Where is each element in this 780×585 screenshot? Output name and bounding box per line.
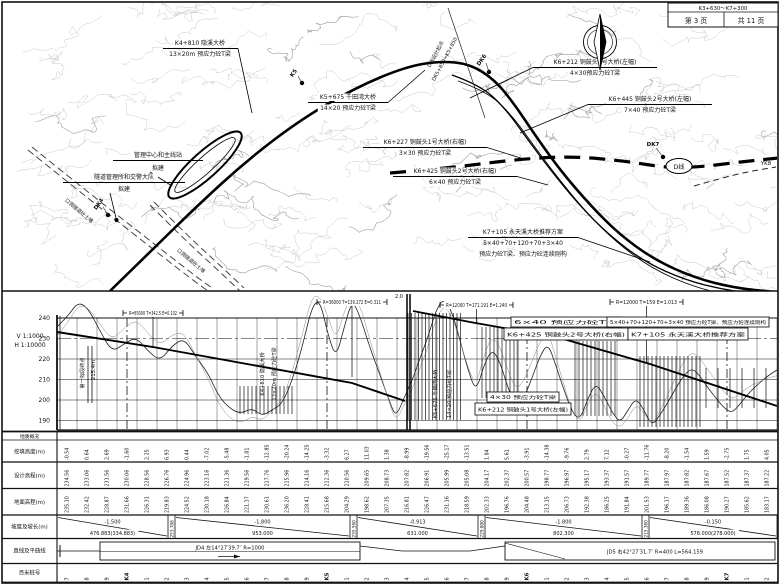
profile-data-table: 地质概况挖填高度(m)设计高程(m)地面高程(m)坡度及坡长(m)直线及平曲线百… — [2, 432, 778, 583]
cut-fill-value: 2.25 — [145, 449, 151, 460]
cut-fill-value: -5.48 — [225, 448, 231, 460]
design-elevation-value: 228.56 — [145, 470, 151, 487]
cut-fill-value: 1.75 — [745, 449, 751, 460]
ground-elevation-value: 206.73 — [565, 496, 571, 513]
design-elevation-value: 209.65 — [365, 470, 371, 487]
ground-elevation-value: 228.41 — [305, 496, 311, 513]
design-elevation-value: 187.67 — [705, 470, 711, 487]
map-callout: K5+675 千田湾大桥14×20 预应力砼T梁 — [308, 70, 425, 112]
grade-percent: -1.500 — [104, 520, 120, 526]
station-stake-label: 7 — [465, 577, 471, 580]
cut-fill-value: 2.79 — [585, 449, 591, 460]
station-stake-label: 2 — [365, 577, 371, 580]
ground-elevation-value: 235.10 — [65, 496, 71, 513]
profile-view: 240230220210200190R=85000 T=342.5 E=0.10… — [39, 294, 777, 430]
sheet-chainage-range: K3+630～K7+300 — [699, 6, 749, 12]
design-elevation-value: 226.76 — [165, 470, 171, 487]
table-row-header: 挖填高度(m) — [14, 448, 45, 456]
bridge-name-text: K6+212 铜鼓头1号大桥(左幅) — [478, 406, 568, 414]
station-stake-label: 4 — [605, 577, 611, 580]
callout-text: 拟建 — [118, 185, 130, 193]
bridge-name-text: K6+425 铜鼓头2号大桥(右幅) — [507, 331, 625, 339]
cut-fill-value: -12.85 — [265, 445, 271, 460]
contour-line — [233, 175, 310, 196]
yk-line — [694, 167, 776, 186]
callout-text: 7×40 预应力砼T梁 — [624, 106, 676, 114]
grade-length: 953.000 — [252, 531, 273, 537]
station-stake-label: 3 — [585, 577, 591, 580]
grade-percent: -0.913 — [409, 520, 425, 526]
cut-fill-value: 2.69 — [105, 449, 111, 460]
elevation-tick-label: 200 — [39, 397, 51, 404]
ground-elevation-value: 218.59 — [465, 496, 471, 513]
elevation-tick-label: 220 — [39, 356, 51, 363]
station-stake-label: 8 — [485, 577, 491, 580]
cut-fill-value: 11.03 — [365, 446, 371, 460]
table-row-header: 地质概况 — [20, 433, 39, 440]
contour-line — [359, 197, 392, 214]
cut-fill-value: 1.84 — [485, 449, 491, 460]
contour-line — [414, 237, 463, 246]
ground-elevation-value: 204.48 — [525, 496, 531, 513]
drawing-sheet: 口洞隧道砼土堆口洞隧道砼土堆D线设计起点DK5+850=K5+850K5DK6D… — [0, 0, 780, 585]
cut-fill-value: -8.99 — [405, 448, 411, 460]
cut-fill-value: -0.54 — [65, 448, 71, 460]
cut-fill-value: -11.76 — [645, 445, 651, 460]
contour-line — [525, 180, 550, 197]
interchange-loop — [161, 123, 250, 207]
contour-line — [69, 117, 104, 148]
station-stake-label: 8 — [285, 577, 291, 580]
ground-elevation-value: 231.66 — [125, 496, 131, 513]
ground-elevation-value: 228.87 — [105, 496, 111, 513]
callout-leader-line — [388, 70, 425, 103]
cut-fill-value: 0.44 — [185, 449, 191, 460]
design-elevation-value: 212.36 — [325, 470, 331, 487]
cut-fill-value: 0.64 — [85, 449, 91, 460]
station-stake-label: 2 — [765, 577, 771, 580]
contour-line — [21, 139, 103, 163]
table-row-header: 直线及平曲线 — [13, 547, 46, 555]
station-stake-label: 1 — [345, 577, 351, 580]
contour-line — [650, 128, 675, 153]
cut-fill-value: -14.25 — [305, 445, 311, 460]
ground-elevation-value: 207.35 — [385, 496, 391, 513]
callout-text: K7+105 永天溪大桥推荐方案 — [483, 228, 563, 236]
pvi-elevation-note: 235.560 — [352, 520, 357, 538]
ground-elevation-value: 202.33 — [485, 496, 491, 513]
contour-line — [506, 154, 537, 170]
station-stake-label: 7 — [665, 577, 671, 580]
contour-line — [87, 221, 135, 256]
station-stake-label: 7 — [65, 577, 71, 580]
right-carriageway-road — [452, 75, 765, 295]
contour-line — [467, 204, 502, 221]
contour-line — [648, 77, 700, 91]
station-stake-label: K7 — [725, 572, 731, 580]
contour-line — [359, 152, 398, 172]
callout-text: 6×40 预应力砼T梁 — [429, 178, 481, 186]
contour-line — [23, 15, 103, 52]
contour-line — [528, 103, 575, 121]
contour-line — [734, 188, 780, 212]
contour-line — [267, 37, 303, 62]
contour-line — [307, 16, 358, 33]
contour-line — [559, 144, 617, 165]
bridge-span-text: 4×30 预应力砼T梁 — [490, 394, 556, 401]
bridge-span-text: 6×40 预应力砼T梁 — [514, 319, 618, 326]
ground-elevation-value: 216.81 — [405, 496, 411, 513]
contour-line — [564, 107, 602, 119]
ground-elevation-value: 221.37 — [245, 496, 251, 513]
station-stake-label: 4 — [205, 577, 211, 580]
cut-fill-value: -1.54 — [685, 448, 691, 460]
ground-elevation-value: 185.62 — [745, 496, 751, 513]
station-stake-label: 6 — [245, 577, 251, 580]
callout-text: 拟建 — [152, 164, 164, 172]
cut-fill-value: 1.59 — [705, 449, 711, 460]
ground-elevation-value: 191.84 — [625, 496, 631, 513]
contour-line — [568, 14, 617, 36]
contour-line — [223, 198, 246, 210]
callout-text: 3×30 预应力砼T梁 — [399, 149, 451, 157]
callout-text: K6+212 铜鼓头1号大桥(左幅) — [554, 58, 637, 66]
vcurve-data-text: R=12000 T=159 E=1.013 — [616, 300, 677, 306]
contour-line — [373, 54, 396, 69]
grade-length: 476.883(334.883) — [90, 531, 135, 537]
sheet-page-total: 共 11 页 — [738, 16, 765, 25]
design-elevation-value: 191.57 — [625, 470, 631, 487]
ground-elevation-value: 215.68 — [325, 496, 331, 513]
design-elevation-value: 202.37 — [505, 470, 511, 487]
callout-text: K5+675 千田湾大桥 — [320, 93, 376, 101]
contour-line — [264, 240, 290, 252]
table-row-header: 百米桩号 — [19, 569, 41, 577]
contour-line — [54, 264, 103, 288]
map-callout: K6+425 铜鼓头2号大桥(右幅)6×40 预应力砼T梁 — [393, 167, 548, 186]
contour-line — [601, 260, 662, 286]
service-road — [458, 81, 771, 301]
spiral-transition — [470, 546, 505, 551]
callout-leader-line — [110, 193, 116, 218]
ground-elevation-value: 201.53 — [645, 496, 651, 513]
ground-elevation-value: 232.42 — [85, 496, 91, 513]
design-elevation-value: 207.82 — [405, 470, 411, 487]
callout-text: 4×30预应力砼T梁 — [570, 69, 620, 77]
design-elevation-value: 195.17 — [585, 470, 591, 487]
design-elevation-value: 206.91 — [425, 470, 431, 487]
contour-line — [331, 136, 388, 155]
design-elevation-value: 205.99 — [445, 470, 451, 487]
pvi-elevation-note: 229.800 — [480, 520, 485, 538]
design-elevation-value: 196.97 — [565, 470, 571, 487]
callout-text: 隧道管理所和交警大队 — [94, 173, 154, 181]
contour-line — [91, 239, 107, 266]
station-stake-label: K4 — [125, 572, 131, 580]
design-elevation-value: 215.96 — [285, 470, 291, 487]
design-elevation-value: 204.17 — [485, 470, 491, 487]
ground-elevation-value: 186.08 — [705, 496, 711, 513]
ground-elevation-value: 198.62 — [365, 496, 371, 513]
station-stake-label: K6 — [525, 572, 531, 580]
cut-fill-value: -7.02 — [205, 448, 211, 460]
d-line-label: D线 — [674, 163, 685, 171]
contour-line — [629, 125, 692, 141]
contour-line — [692, 134, 719, 152]
contour-line — [713, 249, 728, 278]
design-elevation-value: 208.73 — [385, 470, 391, 487]
curve-data-text: JD4 左14°27′39.7″ R=1000 — [195, 544, 265, 552]
ground-elevation-value: 186.25 — [605, 496, 611, 513]
curve-data-text: JD5 右42°27′31.7″ R=400 L=564.159 — [606, 548, 703, 556]
contour-line — [213, 248, 277, 273]
design-elevation-value: 193.37 — [605, 470, 611, 487]
contour-line — [130, 69, 190, 83]
elevation-tick-label: 190 — [39, 418, 51, 425]
design-elevation-value: 234.56 — [65, 470, 71, 487]
design-elevation-value: 187.37 — [745, 470, 751, 487]
interchange-loop-inner — [170, 132, 240, 197]
cut-fill-value: -9.76 — [565, 448, 571, 460]
contour-line — [739, 254, 780, 275]
callout-text: 预应力砼T梁、预应力砼连续刚构 — [479, 250, 567, 258]
contour-line — [319, 14, 398, 45]
station-stake-label: 4 — [405, 577, 411, 580]
callout-leader-line — [470, 68, 533, 99]
station-stake-label: K5 — [325, 572, 331, 580]
cut-fill-value: -1.81 — [245, 448, 251, 460]
ground-elevation-value: 196.17 — [665, 496, 671, 513]
cut-fill-value: -13.51 — [465, 445, 471, 460]
contour-line — [28, 108, 67, 120]
ground-elevation-value: 204.29 — [345, 496, 351, 513]
cut-fill-value: 1.38 — [385, 449, 391, 460]
design-elevation-value: 231.56 — [105, 470, 111, 487]
station-stake-label: 9 — [505, 577, 511, 580]
map-callout: K6+227 铜鼓头1号大桥(右幅)3×30 预应力砼T梁 — [363, 138, 527, 160]
design-elevation-value: 210.56 — [345, 470, 351, 487]
elevation-tick-label: 240 — [39, 315, 51, 322]
cut-fill-value: -2.75 — [725, 448, 731, 460]
elevation-tick-label: 210 — [39, 377, 51, 384]
vcurve-data-text: R=12000 T=171.191 E=1.240 — [446, 303, 507, 309]
contour-line — [319, 117, 377, 135]
ground-elevation-value: 226.47 — [425, 496, 431, 513]
design-elevation-value: 217.76 — [265, 470, 271, 487]
station-stake-label: 7 — [265, 577, 271, 580]
cut-fill-value: 6.27 — [345, 449, 351, 460]
vcurve-data-text: R=36000 T=139.272 E=0.311 — [323, 300, 381, 306]
contour-line — [233, 2, 280, 11]
ground-elevation-value: 226.84 — [225, 496, 231, 513]
callout-leader-line — [517, 177, 548, 186]
cut-fill-value: -1.60 — [125, 448, 131, 460]
station-stake-label: 3 — [185, 577, 191, 580]
map-callout: K4+810 隐溪大桥13×20m 预应力砼T梁 — [163, 39, 252, 113]
contour-line — [723, 145, 766, 154]
grade-percent: -0.150 — [705, 520, 721, 526]
contour-line — [108, 95, 185, 132]
contour-line — [156, 18, 218, 55]
station-marker-label: K5 — [289, 68, 299, 78]
profile-vertical-note: 13×20m 预应力砼T梁 — [270, 347, 278, 400]
callout-leader-line — [520, 105, 588, 134]
design-gradeline-left — [57, 332, 405, 401]
station-stake-label: 9 — [705, 577, 711, 580]
contour-line — [36, 115, 106, 133]
plan-profile-drawing: 口洞隧道砼土堆口洞隧道砼土堆D线设计起点DK5+850=K5+850K5DK6D… — [0, 0, 780, 585]
ground-elevation-value: 230.18 — [205, 496, 211, 513]
cut-fill-value: -14.38 — [545, 445, 551, 460]
ground-elevation-value: 226.31 — [145, 496, 151, 513]
pvi-elevation-note: 215.360 — [644, 520, 649, 538]
contour-line — [17, 160, 91, 176]
callout-text: 14×20 预应力砼T梁 — [320, 104, 376, 112]
cut-fill-value: -20.24 — [285, 445, 291, 460]
cut-fill-value: 7.12 — [605, 449, 611, 460]
design-elevation-value: 233.06 — [85, 470, 91, 487]
contour-line — [276, 113, 300, 121]
design-elevation-value: 221.36 — [225, 470, 231, 487]
ground-elevation-value: 192.38 — [585, 496, 591, 513]
callout-target-dot — [115, 218, 119, 222]
grade-length: 631.000 — [407, 531, 428, 537]
station-stake-label: 6 — [645, 577, 651, 580]
design-elevation-value: 187.97 — [665, 470, 671, 487]
station-tick — [656, 148, 663, 157]
design-elevation-value: 200.57 — [525, 470, 531, 487]
grade-length: 802.300 — [553, 531, 574, 537]
contour-line — [545, 130, 558, 141]
contour-line — [567, 103, 622, 123]
callout-text: K6+227 铜鼓头1号大桥(右幅) — [384, 138, 467, 146]
design-elevation-value: 187.22 — [765, 470, 771, 487]
grade-percent: -1.800 — [254, 520, 270, 526]
contour-line — [182, 73, 259, 89]
contour-line — [440, 12, 476, 30]
design-elevation-value: 223.16 — [205, 470, 211, 487]
contour-line — [350, 51, 380, 64]
contour-line — [294, 186, 338, 202]
sheet-frame — [2, 2, 778, 583]
ground-elevation-value: 189.36 — [685, 496, 691, 513]
table-row-header: 设计高程(m) — [14, 472, 45, 480]
cut-fill-value: 5.61 — [505, 449, 511, 460]
station-tick — [103, 207, 108, 215]
station-stake-label: 5 — [425, 577, 431, 580]
station-stake-label: 8 — [685, 577, 691, 580]
splice-label: 2.0 — [395, 294, 403, 300]
contour-line — [24, 217, 56, 244]
bridge-span-text: 5×40+70+120+70+3×40 预应力砼T梁、预应力砼连续刚构 — [610, 319, 766, 326]
station-tick — [298, 76, 302, 83]
table-row-header: 坡度及坡长(m) — [11, 523, 47, 531]
cut-fill-value: -0.27 — [625, 448, 631, 460]
station-stake-label: 5 — [625, 577, 631, 580]
design-elevation-value: 214.16 — [305, 470, 311, 487]
bridge-name-text: K7+105 永天溪大桥推荐方案 — [631, 331, 746, 339]
cut-fill-value: -25.17 — [445, 445, 451, 460]
cut-fill-value: 4.05 — [765, 449, 771, 460]
contour-line — [504, 203, 551, 211]
contour-line — [349, 195, 397, 233]
contour-line — [756, 128, 780, 152]
contour-line — [662, 36, 708, 47]
station-stake-label: 1 — [145, 577, 151, 580]
contour-line — [65, 167, 84, 188]
contour-line — [227, 69, 268, 83]
spiral-transition — [360, 546, 402, 551]
ground-elevation-value: 224.52 — [185, 496, 191, 513]
contour-line — [286, 266, 349, 298]
contour-line — [611, 173, 647, 194]
callout-text: 管理中心和主线站 — [134, 151, 182, 159]
table-row-header: 地面高程(m) — [14, 498, 45, 506]
design-elevation-value: 230.06 — [125, 470, 131, 487]
yk8-label: YK8 — [760, 161, 772, 167]
grade-percent: -1.800 — [555, 520, 571, 526]
cut-fill-value: -3.32 — [325, 448, 331, 460]
horizontal-scale-label: H 1:10000 — [14, 342, 46, 349]
station-stake-label: 3 — [385, 577, 391, 580]
callout-text: K6+425 铜鼓头2号大桥(右幅) — [414, 167, 497, 175]
station-stake-label: 8 — [85, 577, 91, 580]
contour-line — [210, 67, 265, 78]
ground-elevation-value: 236.20 — [285, 496, 291, 513]
sheet-page-number: 第 3 页 — [685, 16, 707, 25]
contour-line — [248, 236, 327, 263]
design-elevation-value: 187.52 — [725, 470, 731, 487]
ground-elevation-value: 219.83 — [165, 496, 171, 513]
callout-text: K4+810 隐溪大桥 — [175, 39, 225, 47]
cut-fill-value: -3.91 — [525, 448, 531, 460]
contour-line — [130, 92, 181, 105]
cut-fill-value: -19.56 — [425, 445, 431, 460]
sheet-border — [2, 2, 778, 583]
title-block: K3+630～K7+300 第 3 页 共 11 页 — [668, 3, 778, 27]
station-stake-label: 6 — [445, 577, 451, 580]
profile-vertical-note: K5+675 千田湾大桥 — [431, 369, 439, 418]
design-elevation-value: 224.96 — [185, 470, 191, 487]
design-elevation-value: 187.82 — [685, 470, 691, 487]
contour-line — [204, 204, 255, 233]
map-callout: K6+212 铜鼓头1号大桥(左幅)4×30预应力砼T梁 — [470, 58, 657, 98]
design-elevation-value: 189.77 — [645, 470, 651, 487]
contour-line — [721, 265, 774, 292]
design-elevation-value: 198.77 — [545, 470, 551, 487]
ground-elevation-value: 231.16 — [445, 496, 451, 513]
contour-line — [618, 7, 641, 15]
callout-text: K6+445 铜鼓头2号大桥(左幅) — [609, 95, 692, 103]
pvi-elevation-note: 253.708 — [170, 520, 175, 538]
callout-text: 13×20m 预应力砼T梁 — [169, 50, 231, 58]
ground-elevation-value: 213.15 — [545, 496, 551, 513]
profile-vertical-note: 第一标段终点 — [78, 357, 86, 388]
local-road — [154, 202, 244, 288]
cut-fill-value: 6.93 — [165, 449, 171, 460]
design-elevation-value: 205.08 — [465, 470, 471, 487]
vcurve-data-text: R=85000 T=342.5 E=0.102 — [129, 311, 177, 317]
contour-line — [345, 158, 383, 177]
contour-line — [656, 74, 740, 90]
contour-line — [711, 213, 768, 233]
contour-line — [570, 244, 599, 260]
local-road — [150, 205, 240, 291]
profile-vertical-note: 215.4m — [91, 360, 97, 380]
station-stake-label: 2 — [565, 577, 571, 580]
station-stake-label: 9 — [105, 577, 111, 580]
ground-elevation-value: 183.17 — [765, 496, 771, 513]
